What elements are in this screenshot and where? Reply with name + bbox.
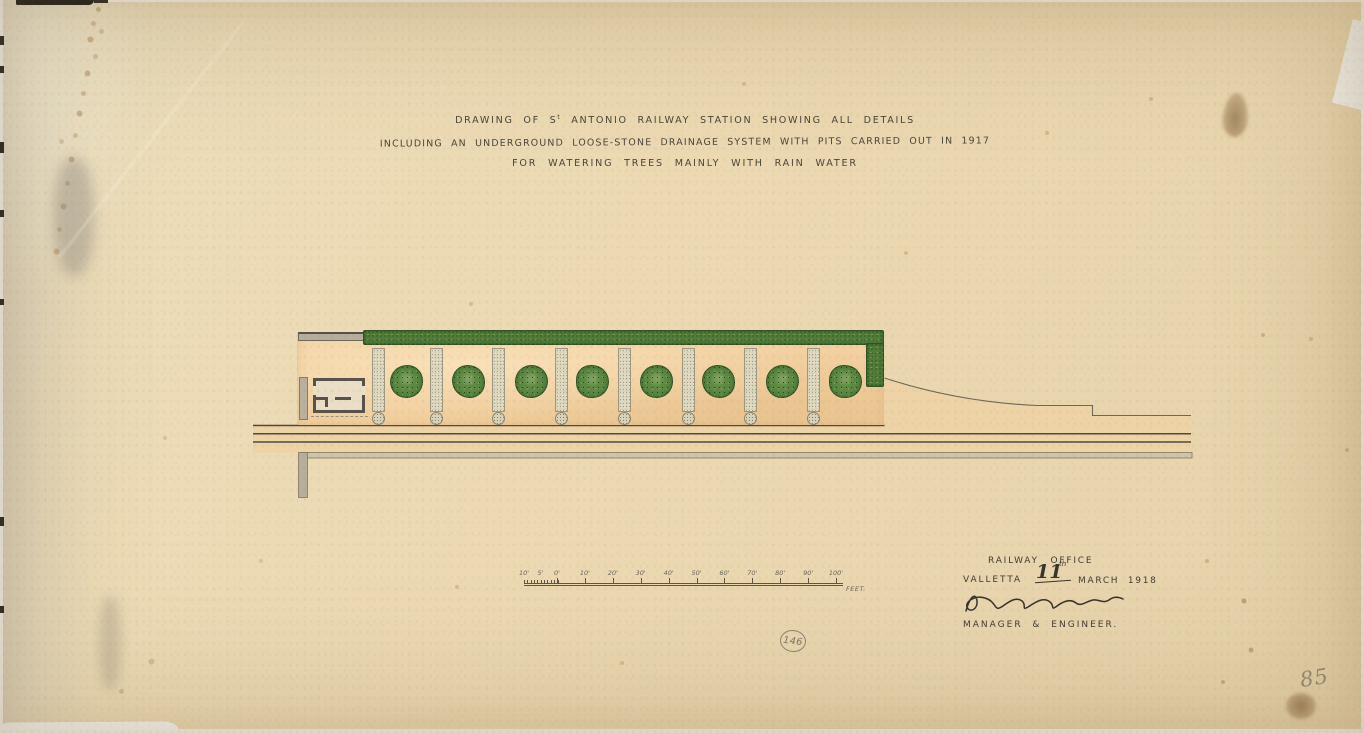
office-place: VALLETTA [963, 575, 1022, 585]
paper-crease [58, 21, 244, 259]
tree-canopy [640, 365, 673, 398]
scale-tick [557, 578, 558, 583]
scale-tick [836, 578, 837, 583]
title-line-3: FOR WATERING TREES MAINLY WITH RAIN WATE… [330, 158, 1040, 169]
scan-edge-mark [0, 299, 4, 305]
title-line-2: INCLUDING AN UNDERGROUND LOOSE-STONE DRA… [330, 135, 1040, 150]
hedge-right [866, 343, 884, 387]
scan-edge-bottom [0, 729, 1364, 733]
scale-subtick [537, 580, 538, 583]
drainage-pit [492, 348, 505, 412]
scale-label: 10' [519, 569, 529, 577]
scale-label: 10' [580, 569, 590, 577]
scale-subtick [527, 580, 528, 583]
veranda-dashed-edge [311, 416, 368, 417]
scan-edge-mark [0, 142, 4, 153]
station-building-plan [313, 378, 365, 413]
building-door-right [362, 386, 365, 395]
scale-label: 60' [719, 569, 729, 577]
scale-tick [724, 578, 725, 583]
scale-label: 90' [803, 569, 813, 577]
scale-tick [585, 578, 586, 583]
pit-outlet [807, 412, 820, 425]
pit-outlet [744, 412, 757, 425]
office-role: MANAGER & ENGINEER. [963, 620, 1118, 630]
building-internal-wall [335, 397, 351, 400]
drainage-pit [682, 348, 695, 412]
scale-subtick [554, 580, 555, 583]
scale-label: 100' [829, 569, 843, 577]
pit-outlet [372, 412, 385, 425]
drainage-pit [744, 348, 757, 412]
pencil-page-number: 85 [1298, 664, 1330, 692]
bottom-right-stain [1286, 693, 1316, 719]
scale-label: 40' [664, 569, 674, 577]
scan-edge-top [96, 0, 1364, 2]
date-ordinal: th [1059, 560, 1066, 568]
road-edge-band [300, 453, 1192, 459]
scale-label: 0' [554, 569, 560, 577]
scale-subtick [544, 580, 545, 583]
corner-light-patch [0, 0, 150, 300]
scale-subtick [531, 580, 532, 583]
title-block: DRAWING OF St ANTONIO RAILWAY STATION SH… [330, 114, 1040, 169]
circled-archive-number: 146 [779, 628, 807, 653]
ramp-step-line [885, 378, 1192, 416]
gray-smudge-stain [99, 596, 121, 690]
worn-left-edge-stain [0, 0, 95, 733]
scan-edge-mark [0, 210, 4, 217]
cut-corner [1332, 19, 1364, 111]
road-edge-vertical [299, 453, 308, 498]
scattered-spots [0, 0, 2, 2]
scale-label: 30' [636, 569, 646, 577]
drainage-pit [807, 348, 820, 412]
boundary-wall-band [298, 332, 364, 341]
scale-subtick [541, 580, 542, 583]
scale-tick [697, 578, 698, 583]
drainage-pit [555, 348, 568, 412]
scan-edge-mark [0, 517, 4, 526]
gray-stain [54, 158, 94, 276]
ramp-wash [884, 379, 1191, 453]
torn-corner [0, 721, 178, 733]
scale-label: 20' [608, 569, 618, 577]
circled-number-text: 146 [783, 634, 804, 647]
pit-outlet [682, 412, 695, 425]
scanned-drawing-sheet: DRAWING OF St ANTONIO RAILWAY STATION SH… [0, 0, 1364, 733]
scale-tick [613, 578, 614, 583]
tree-canopy [452, 365, 485, 398]
scale-tick [752, 578, 753, 583]
date-month-year: MARCH 1918 [1078, 576, 1158, 586]
building-internal-wall-stub [325, 397, 328, 407]
scan-edge-left [0, 0, 3, 733]
scale-tick [780, 578, 781, 583]
scan-artifact-dark [16, 0, 94, 5]
foxing-spots [0, 0, 3, 3]
scale-tick [641, 578, 642, 583]
drainage-pit [372, 348, 385, 412]
scan-artifact-dark [94, 0, 108, 3]
scan-edge-mark [0, 66, 4, 73]
title-line-1: DRAWING OF St ANTONIO RAILWAY STATION SH… [330, 114, 1040, 126]
side-wall-strip [299, 377, 308, 420]
tree-canopy [515, 365, 548, 398]
manager-signature [966, 596, 1123, 611]
hedge-top [363, 330, 884, 345]
tree-canopy [829, 365, 862, 398]
scale-label: 70' [747, 569, 757, 577]
pit-outlet [492, 412, 505, 425]
scale-subtick [551, 580, 552, 583]
scale-subtick [547, 580, 548, 583]
tree-canopy [702, 365, 735, 398]
track-bed-wash [253, 424, 1192, 453]
scan-edge-mark [0, 36, 4, 45]
tree-canopy [766, 365, 799, 398]
scale-tick [669, 578, 670, 583]
tree-canopy [576, 365, 609, 398]
scale-tick [808, 578, 809, 583]
scan-edge-mark [0, 606, 4, 613]
pit-outlet [555, 412, 568, 425]
scale-unit-label: FEET. [846, 585, 866, 593]
drainage-pit [618, 348, 631, 412]
scale-label: 80' [775, 569, 785, 577]
scale-subtick [534, 580, 535, 583]
drainage-pit [430, 348, 443, 412]
teardrop-stain [1221, 92, 1249, 138]
scale-bar-line [524, 583, 843, 586]
building-door-left [313, 386, 316, 395]
scale-subtick [524, 580, 525, 583]
tree-canopy [390, 365, 423, 398]
pit-outlet [430, 412, 443, 425]
scale-label: 5' [538, 569, 544, 577]
pit-outlet [618, 412, 631, 425]
scale-label: 50' [691, 569, 701, 577]
